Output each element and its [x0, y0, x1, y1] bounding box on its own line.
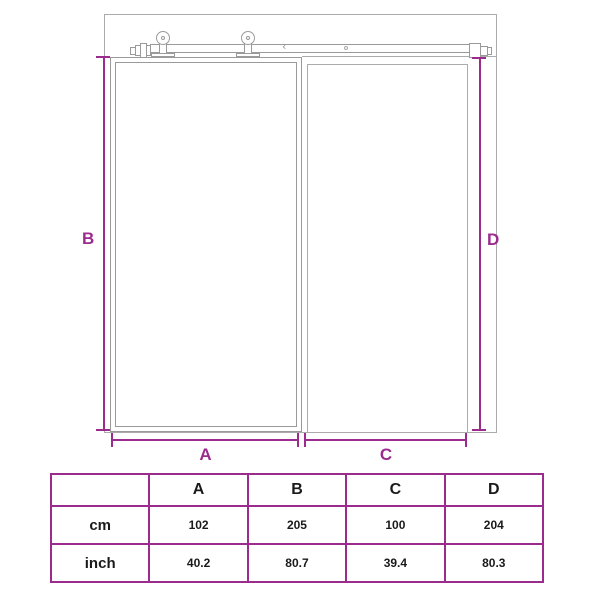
door-panel-inner-frame — [115, 62, 297, 427]
dimension-label-b: B — [82, 230, 94, 247]
product-dimension-image: ‹ — [0, 0, 600, 600]
dimension-tick-top — [96, 56, 110, 58]
table-header-c: C — [346, 474, 444, 506]
table-row-cm: cm 102 205 100 204 — [51, 506, 543, 544]
wall-header-line — [302, 56, 497, 57]
table-header-d: D — [445, 474, 543, 506]
row-label-cm: cm — [51, 506, 149, 544]
cell-cm-b: 205 — [248, 506, 346, 544]
table-header-b: B — [248, 474, 346, 506]
table-corner-cell — [51, 474, 149, 506]
door-panel — [110, 57, 302, 432]
dimensions-table: A B C D cm 102 205 100 204 inch 40.2 80.… — [50, 473, 544, 583]
dimension-tick-left — [111, 433, 113, 447]
dimension-tick-right — [465, 433, 467, 447]
cell-cm-a: 102 — [149, 506, 247, 544]
dimension-line — [103, 57, 105, 430]
dimension-label-a: A — [112, 446, 299, 463]
cell-cm-d: 204 — [445, 506, 543, 544]
dimension-tick-bottom — [96, 429, 110, 431]
cell-cm-c: 100 — [346, 506, 444, 544]
dimension-label-c: C — [305, 446, 467, 463]
doorway-opening — [307, 64, 468, 433]
sliding-rail — [150, 44, 470, 53]
cap-tip — [487, 47, 492, 55]
row-label-inch: inch — [51, 544, 149, 582]
dimension-line — [305, 439, 467, 441]
cell-inch-c: 39.4 — [346, 544, 444, 582]
dimension-line — [479, 58, 481, 430]
dimension-tick-right — [297, 433, 299, 447]
table-row-inch: inch 40.2 80.7 39.4 80.3 — [51, 544, 543, 582]
dimension-tick-bottom — [472, 429, 486, 431]
table-header-row: A B C D — [51, 474, 543, 506]
dimension-line — [112, 439, 299, 441]
dimension-tick-left — [304, 433, 306, 447]
dimension-tick-top — [472, 57, 486, 59]
cell-inch-d: 80.3 — [445, 544, 543, 582]
roller-hub — [161, 36, 165, 40]
cell-inch-b: 80.7 — [248, 544, 346, 582]
roller-hub — [246, 36, 250, 40]
cell-inch-a: 40.2 — [149, 544, 247, 582]
dimension-label-d: D — [487, 231, 499, 248]
rail-screw-icon — [344, 46, 348, 50]
sliding-door-diagram: ‹ — [0, 0, 600, 470]
rail-notch-icon: ‹ — [282, 41, 286, 52]
table-header-a: A — [149, 474, 247, 506]
